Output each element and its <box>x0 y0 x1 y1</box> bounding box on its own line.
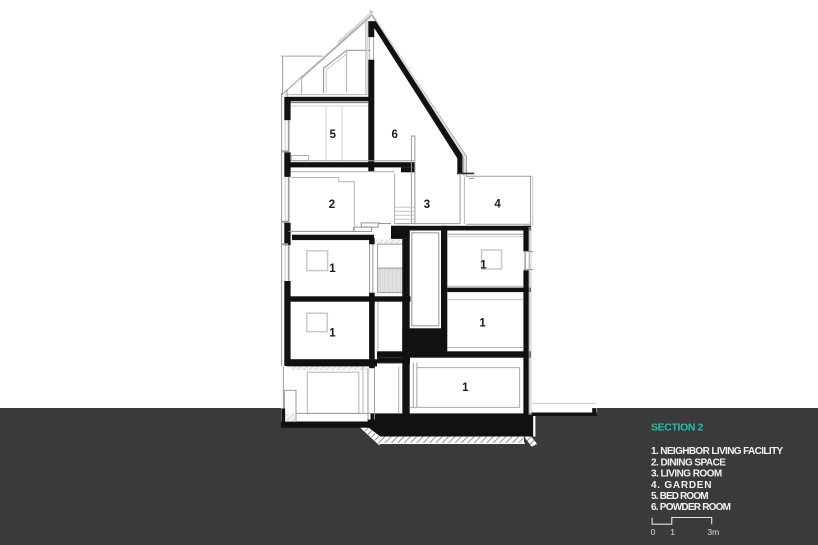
svg-text:5. BED ROOM: 5. BED ROOM <box>651 491 708 502</box>
svg-text:3m: 3m <box>707 527 719 537</box>
svg-text:0: 0 <box>651 527 656 537</box>
svg-text:1: 1 <box>462 382 469 394</box>
svg-text:6. POWDER ROOM: 6. POWDER ROOM <box>651 502 731 513</box>
svg-text:1: 1 <box>480 260 487 272</box>
svg-text:2: 2 <box>329 199 335 211</box>
svg-text:3. LIVING ROOM: 3. LIVING ROOM <box>651 469 722 480</box>
svg-text:1. NEIGHBOR LIVING FACILITY: 1. NEIGHBOR LIVING FACILITY <box>651 446 784 457</box>
svg-text:2. DINING SPACE: 2. DINING SPACE <box>651 457 726 468</box>
svg-text:1: 1 <box>670 527 675 537</box>
svg-text:6: 6 <box>391 129 397 141</box>
svg-text:SECTION 2: SECTION 2 <box>651 423 704 434</box>
svg-text:3: 3 <box>424 199 430 211</box>
svg-text:5: 5 <box>329 129 336 141</box>
svg-text:1: 1 <box>329 327 336 339</box>
svg-text:4. GARDEN: 4. GARDEN <box>651 480 712 491</box>
svg-text:4: 4 <box>494 199 501 211</box>
svg-text:1: 1 <box>329 263 336 275</box>
svg-text:1: 1 <box>479 318 486 330</box>
